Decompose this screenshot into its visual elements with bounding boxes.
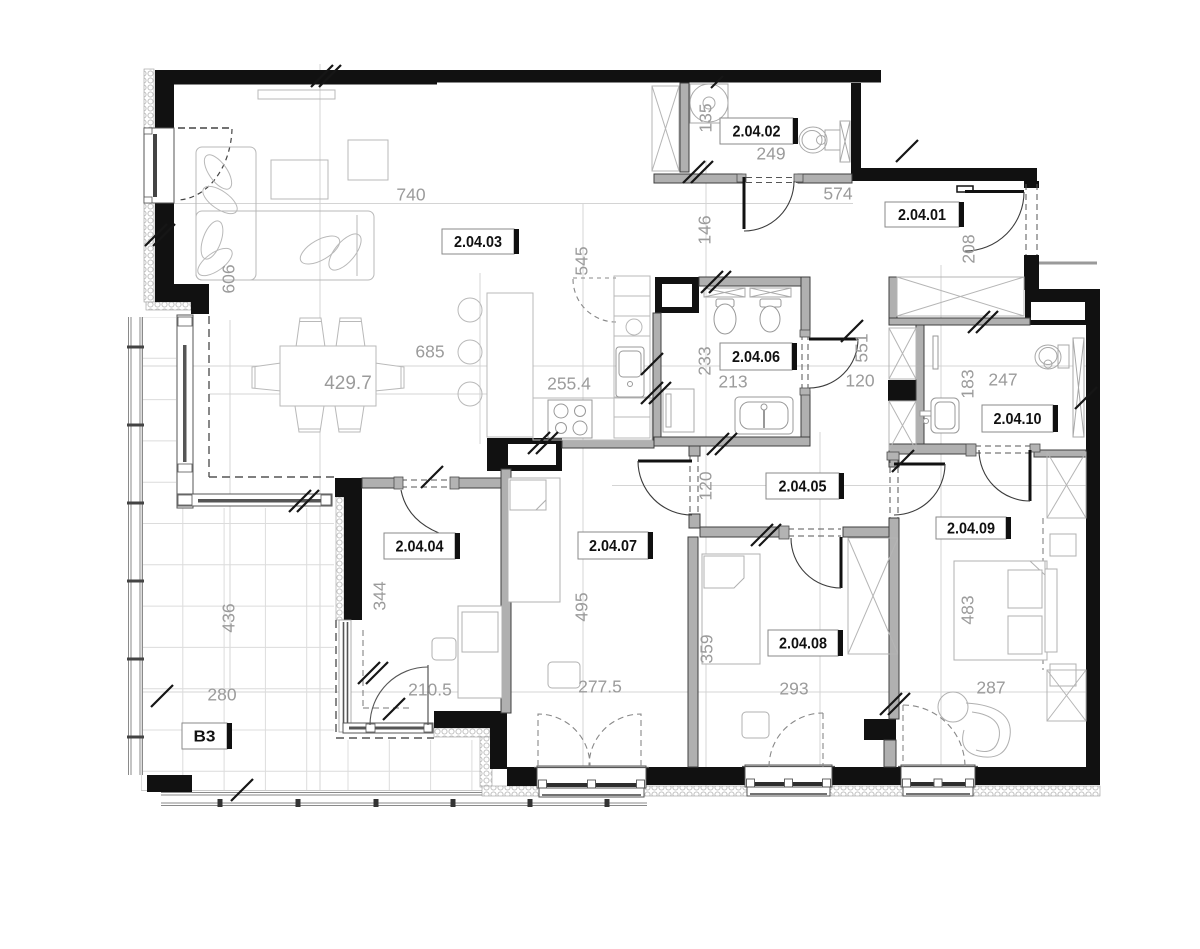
svg-text:2.04.01: 2.04.01 (898, 207, 946, 224)
svg-text:545: 545 (572, 246, 592, 275)
svg-text:685: 685 (415, 342, 444, 362)
svg-text:359: 359 (697, 634, 717, 663)
svg-text:606: 606 (219, 264, 239, 293)
svg-text:146: 146 (695, 215, 715, 244)
svg-text:2.04.05: 2.04.05 (779, 479, 827, 496)
svg-text:120: 120 (845, 371, 874, 391)
svg-text:2.04.04: 2.04.04 (396, 539, 444, 556)
svg-text:293: 293 (779, 679, 808, 699)
svg-text:344: 344 (370, 581, 390, 610)
svg-text:740: 740 (396, 185, 425, 205)
svg-text:B3: B3 (194, 729, 216, 746)
svg-text:2.04.06: 2.04.06 (732, 349, 780, 366)
svg-text:135: 135 (696, 103, 716, 132)
svg-text:551: 551 (852, 333, 872, 362)
svg-text:574: 574 (823, 184, 852, 204)
svg-text:495: 495 (572, 592, 592, 621)
svg-text:2.04.03: 2.04.03 (454, 234, 502, 251)
svg-text:213: 213 (718, 372, 747, 392)
svg-text:483: 483 (958, 595, 978, 624)
svg-text:249: 249 (756, 144, 785, 164)
svg-text:2.04.07: 2.04.07 (589, 538, 637, 555)
svg-text:2.04.10: 2.04.10 (994, 411, 1042, 428)
svg-text:287: 287 (976, 678, 1005, 698)
svg-text:233: 233 (695, 346, 715, 375)
svg-text:120: 120 (696, 471, 716, 500)
svg-text:436: 436 (219, 603, 239, 632)
svg-text:280: 280 (207, 685, 236, 705)
svg-text:255.4: 255.4 (547, 374, 591, 394)
svg-text:183: 183 (958, 369, 978, 398)
svg-text:210.5: 210.5 (408, 680, 452, 700)
svg-text:2.04.08: 2.04.08 (779, 636, 827, 653)
svg-text:429.7: 429.7 (324, 373, 372, 394)
svg-text:247: 247 (988, 370, 1017, 390)
svg-text:208: 208 (959, 234, 979, 263)
svg-text:277.5: 277.5 (578, 677, 622, 697)
svg-text:2.04.02: 2.04.02 (733, 124, 781, 141)
svg-text:2.04.09: 2.04.09 (947, 521, 995, 538)
